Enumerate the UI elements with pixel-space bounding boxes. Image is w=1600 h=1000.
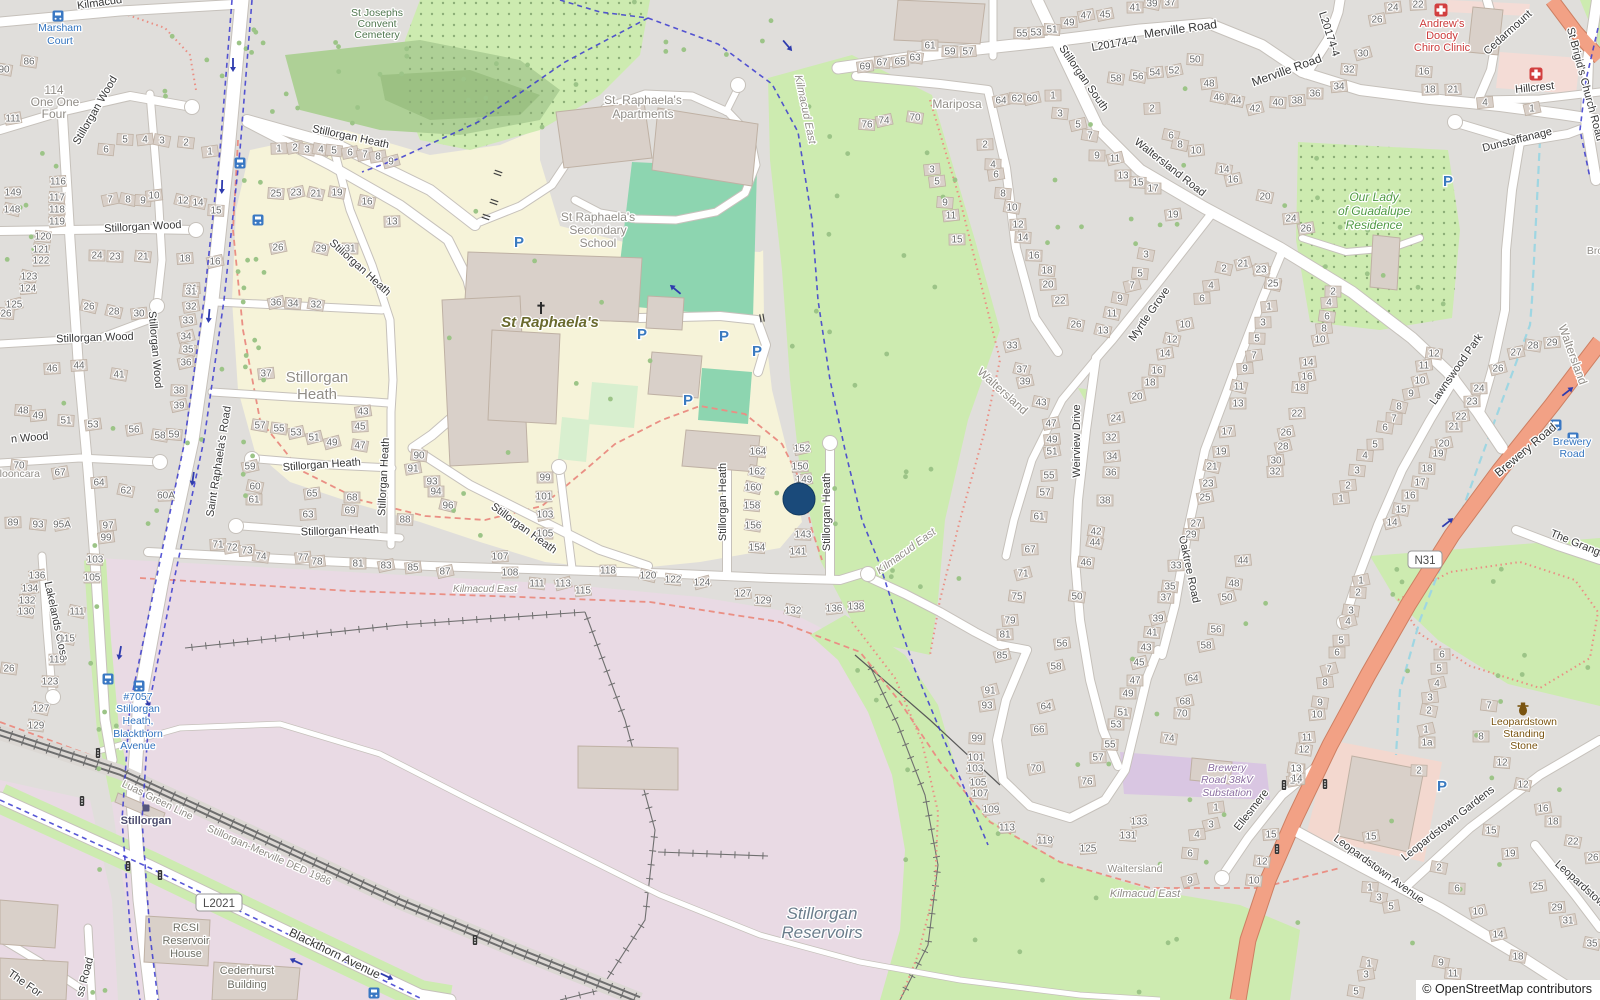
house-number: 62: [1011, 94, 1023, 105]
house-number: 49: [1122, 689, 1134, 700]
map-label: Stillorgan: [787, 904, 858, 923]
map-label: School: [580, 236, 617, 250]
house-number: 10: [148, 191, 160, 202]
house-number: 4: [1345, 617, 1351, 628]
road-ref-text: L2021: [203, 898, 235, 910]
house-number: 160: [745, 483, 762, 494]
house-number: 111: [5, 114, 21, 125]
house-number: 64: [93, 478, 105, 489]
house-number: 26: [83, 302, 95, 313]
house-number: 16: [1404, 491, 1416, 502]
house-number: 57: [254, 421, 266, 432]
house-number: 11: [1110, 154, 1121, 165]
house-number: 49: [32, 411, 44, 422]
house-number: 3: [929, 165, 935, 176]
house-number: 71: [212, 540, 224, 551]
house-number: 108: [502, 568, 519, 579]
house-number: 4: [142, 135, 148, 146]
house-number: 5: [1436, 664, 1442, 675]
house-number: 131: [1120, 831, 1137, 842]
house-number: 5: [331, 146, 337, 157]
house-number: 8: [1322, 678, 1328, 689]
house-number: 6: [1334, 648, 1340, 659]
house-number: 150: [792, 462, 809, 473]
house-number: 2: [292, 143, 298, 154]
house-number: 19: [1432, 449, 1444, 460]
map-viewport[interactable]: PPPPPPPL2021N31KilmacudMarshamCourtStill…: [0, 0, 1600, 1000]
house-number: 141: [790, 547, 807, 558]
map-label: Stillorgan: [121, 815, 172, 827]
house-number: 107: [972, 789, 989, 800]
house-number: 31: [185, 287, 197, 298]
house-number: 26: [1492, 364, 1504, 375]
house-number: 55: [1016, 29, 1028, 40]
house-number: 107: [492, 552, 509, 563]
house-number: 60A: [157, 491, 175, 502]
traffic-signal-icon: [1282, 780, 1286, 790]
map-label: Reservoir: [162, 935, 209, 947]
house-number: 9: [1438, 958, 1444, 969]
house-number: 2: [1436, 863, 1442, 874]
house-number: 42: [1090, 527, 1102, 538]
map-label: Building: [227, 979, 266, 991]
house-number: 46: [1213, 93, 1225, 104]
house-number: 4: [1194, 830, 1200, 841]
house-number: 2: [1221, 264, 1227, 275]
house-number: 51: [60, 416, 72, 427]
house-number: 2: [1416, 766, 1422, 777]
house-number: 9: [942, 198, 948, 209]
parking-icon: P: [752, 343, 762, 360]
bus-stop-icon[interactable]: [134, 681, 145, 692]
house-number: 18: [1512, 952, 1524, 963]
house-number: 53: [290, 428, 302, 439]
house-number: 1: [1050, 91, 1056, 102]
bus-stop-icon[interactable]: [369, 988, 380, 999]
house-number: 29: [315, 244, 327, 255]
map-label: Avenue: [120, 740, 156, 752]
house-number: 75: [1011, 592, 1023, 603]
house-number: 130: [18, 607, 35, 618]
medical-cross-icon: [1530, 68, 1543, 81]
map-label: Secondary: [569, 223, 626, 237]
house-number: 67: [54, 468, 66, 479]
house-number: 12: [177, 196, 189, 207]
house-number: 31: [344, 244, 356, 255]
house-number: 18: [1294, 383, 1306, 394]
house-number: 15: [1365, 832, 1377, 843]
map-label: Stone: [1510, 740, 1538, 752]
map-label: Blackthorn: [113, 728, 163, 740]
house-number: 77: [297, 553, 309, 564]
house-number: 26: [1280, 428, 1292, 439]
house-number: 158: [744, 501, 761, 512]
house-number: 11: [1419, 361, 1430, 372]
house-number: 118: [600, 566, 616, 577]
house-number: 60: [1026, 94, 1038, 105]
house-number: 21: [1448, 422, 1460, 433]
house-number: 129: [755, 596, 772, 607]
house-number: 103: [537, 510, 554, 521]
map-label: Cemetery: [354, 29, 400, 41]
house-number: 35: [182, 345, 194, 356]
house-number: 52: [1168, 66, 1180, 77]
house-number: 123: [42, 677, 59, 688]
map-label: Stillorgan Heath: [717, 463, 729, 541]
house-number: 4: [1482, 98, 1488, 109]
house-number: 15: [951, 235, 963, 246]
house-number: 12: [1298, 745, 1310, 756]
house-number: 5: [1254, 334, 1260, 345]
house-number: 39: [173, 401, 185, 412]
house-number: 17: [1414, 478, 1426, 489]
house-number: 46: [1080, 558, 1092, 569]
house-number: 117: [49, 193, 65, 204]
house-number: 57: [1092, 753, 1104, 764]
house-number: 15: [1265, 830, 1277, 841]
house-number: 61: [1033, 512, 1045, 523]
house-number: 1: [1423, 725, 1429, 736]
map-label: Waltersland: [1107, 863, 1162, 875]
house-number: 47: [354, 441, 366, 452]
house-number: 97: [102, 521, 114, 532]
house-number: 70: [1030, 764, 1042, 775]
house-number: 30: [1270, 456, 1282, 467]
house-number: 2: [1345, 481, 1351, 492]
house-number: 11: [1302, 733, 1313, 744]
house-number: 28: [1277, 442, 1289, 453]
house-number: 13: [1097, 326, 1109, 337]
house-number: 120: [640, 571, 657, 582]
house-number: 4: [318, 145, 324, 156]
traffic-signal-icon: [126, 861, 130, 871]
attribution: © OpenStreetMap contributors: [1416, 980, 1600, 1000]
house-number: 11: [1107, 309, 1118, 320]
map-label: Residence: [1346, 218, 1403, 232]
house-number: 21: [1206, 462, 1218, 473]
house-number: 2: [1426, 706, 1432, 717]
house-number: 58: [154, 431, 166, 442]
house-number: 89: [7, 518, 19, 529]
map-label: St Raphaela's: [501, 314, 599, 331]
house-number: 18: [1424, 85, 1436, 96]
house-number: 5: [1388, 902, 1394, 913]
house-number: 127: [33, 704, 50, 715]
house-number: 50: [1189, 55, 1201, 66]
map-label: House: [170, 948, 202, 960]
house-number: 10: [1314, 335, 1326, 346]
house-number: 39: [1152, 614, 1164, 625]
map-label: Our Lady: [1349, 190, 1399, 204]
house-number: 93: [981, 701, 993, 712]
house-number: 5: [1137, 269, 1143, 280]
house-number: 16: [1151, 366, 1163, 377]
house-number: 51: [1046, 447, 1058, 458]
house-number: 18: [179, 254, 191, 265]
house-number: 115: [59, 634, 75, 645]
map-label: Andrew's: [1420, 18, 1465, 30]
map-canvas[interactable]: PPPPPPPL2021N31KilmacudMarshamCourtStill…: [0, 0, 1600, 1000]
bus-stop-icon[interactable]: [235, 158, 246, 169]
luas-stop-icon[interactable]: [143, 805, 150, 812]
house-number: 1: [1213, 803, 1219, 814]
house-number: 38: [1291, 96, 1303, 107]
house-number: 1: [276, 144, 282, 155]
house-number: 6: [1187, 849, 1193, 860]
house-number: 105: [970, 778, 987, 789]
house-number: 66: [1033, 725, 1045, 736]
house-number: 12: [1166, 335, 1178, 346]
house-number: 143: [795, 530, 812, 541]
house-number: 113: [999, 823, 1015, 834]
house-number: 124: [20, 284, 37, 295]
house-number: 6: [1439, 650, 1445, 661]
house-number: 38: [1099, 496, 1111, 507]
house-number: 7: [1391, 414, 1397, 425]
house-number: 4: [1326, 298, 1332, 309]
map-label: Heath: [297, 386, 337, 403]
house-number: 20: [1042, 280, 1054, 291]
house-number: 4: [1208, 281, 1214, 292]
house-number: 124: [694, 578, 711, 589]
house-number: 8: [1177, 140, 1183, 151]
house-number: 33: [1006, 341, 1018, 352]
house-number: 14: [1159, 349, 1171, 360]
house-number: 45: [1133, 658, 1145, 669]
house-number: 9: [1117, 294, 1123, 305]
house-number: 56: [128, 425, 140, 436]
house-number: 44: [1089, 538, 1101, 549]
map-label: Cederhurst: [220, 965, 274, 977]
house-number: 3: [1427, 693, 1433, 704]
house-number: 19: [1167, 210, 1179, 221]
location-marker[interactable]: [783, 483, 815, 515]
house-number: 15: [1395, 505, 1407, 516]
house-number: 50: [1221, 593, 1233, 604]
house-number: 61: [248, 495, 260, 506]
house-number: 23: [290, 188, 302, 199]
house-number: 1: [207, 147, 213, 158]
house-number: 88: [399, 515, 411, 526]
house-number: 26: [0, 309, 12, 320]
house-number: 39: [1019, 377, 1031, 388]
house-number: 43: [1140, 643, 1152, 654]
house-number: 56: [1210, 625, 1222, 636]
house-number: 96: [442, 501, 454, 512]
house-number: 78: [311, 557, 323, 568]
house-number: 132: [785, 606, 802, 617]
traffic-signal-icon: [80, 796, 84, 806]
house-number: 7: [1251, 351, 1257, 362]
house-number: 81: [352, 559, 364, 570]
house-number: 14: [192, 198, 204, 209]
house-number: 21: [310, 189, 322, 200]
house-number: 53: [1110, 720, 1122, 731]
house-number: 64: [1187, 674, 1199, 685]
house-number: 6: [1454, 884, 1460, 895]
house-number: 3: [159, 136, 165, 147]
house-number: 162: [749, 467, 766, 478]
house-number: 26: [272, 243, 284, 254]
house-number: 20: [1259, 192, 1271, 203]
house-number: 49: [1046, 435, 1058, 446]
house-number: 27: [1510, 348, 1522, 359]
house-number: 72: [226, 543, 238, 554]
map-label: RCSI: [173, 922, 199, 934]
house-number: 17: [1221, 427, 1233, 438]
house-number: 53: [1030, 28, 1042, 39]
map-label: Marsham: [38, 22, 82, 34]
house-number: 70: [1176, 709, 1188, 720]
house-number: 3: [1363, 970, 1369, 981]
house-number: 5: [1338, 636, 1344, 647]
parking-icon: P: [1443, 173, 1453, 190]
map-label: Weirview Drive: [1071, 404, 1083, 477]
house-number: 4: [1434, 679, 1440, 690]
parking-icon: P: [637, 326, 647, 343]
house-number: 68: [1179, 697, 1191, 708]
house-number: 9: [388, 157, 394, 168]
house-number: 44: [73, 361, 85, 372]
house-number: 11: [1234, 382, 1245, 393]
map-label: Four: [42, 107, 67, 121]
house-number: 29: [1546, 338, 1558, 349]
house-number: 12: [1496, 758, 1508, 769]
house-number: 34: [1333, 82, 1345, 93]
house-number: 3: [1354, 466, 1360, 477]
house-number: 15: [1485, 826, 1497, 837]
house-number: 105: [84, 573, 101, 584]
house-number: 111: [529, 579, 545, 590]
house-number: 16: [209, 257, 221, 268]
house-number: 5: [934, 177, 940, 188]
house-number: 47: [1080, 11, 1092, 22]
bus-stop-icon[interactable]: [253, 215, 264, 226]
house-number: 41: [1146, 628, 1158, 639]
house-number: 42: [1249, 104, 1261, 115]
house-number: 115: [575, 586, 591, 597]
house-number: 6: [103, 145, 109, 156]
house-number: 122: [665, 575, 682, 586]
house-number: 58: [1050, 662, 1062, 673]
house-number: 36: [270, 298, 282, 309]
house-number: 3: [304, 145, 310, 156]
house-number: 119: [49, 217, 65, 228]
house-number: 58: [1110, 74, 1122, 85]
house-number: 41: [113, 370, 125, 381]
house-number: 103: [967, 764, 984, 775]
house-number: 2: [1149, 104, 1155, 115]
parking-icon: P: [514, 234, 524, 251]
house-number: 19: [1215, 447, 1227, 458]
house-number: 54: [1149, 68, 1161, 79]
house-number: 23: [109, 252, 121, 263]
house-number: 21: [1447, 85, 1459, 96]
house-number: 14: [1291, 774, 1303, 785]
house-number: 17: [1147, 184, 1159, 195]
house-number: 118: [49, 205, 65, 216]
house-number: 111: [69, 607, 85, 618]
house-number: 32: [1269, 467, 1281, 478]
house-number: 15: [1132, 178, 1144, 189]
house-number: 24: [1110, 414, 1122, 425]
house-number: 49: [1063, 18, 1075, 29]
map-label: Stillorgan: [286, 369, 349, 386]
house-number: 51: [1117, 708, 1129, 719]
map-label: St Raphaela's: [561, 210, 635, 224]
house-number: 63: [302, 510, 314, 521]
house-number: 37: [1164, 0, 1176, 9]
house-number: 22: [1412, 0, 1424, 11]
map-label: of Guadalupe: [1338, 204, 1410, 218]
house-number: 136: [826, 604, 843, 615]
house-number: 11: [1448, 969, 1459, 980]
house-number: 116: [50, 177, 66, 188]
map-label: St. Raphaela's: [604, 93, 682, 107]
house-number: 25: [1199, 493, 1211, 504]
map-label: Court: [47, 35, 73, 47]
house-number: 109: [983, 805, 1000, 816]
house-number: 40: [1272, 98, 1284, 109]
map-label: Brewery: [1553, 436, 1592, 448]
house-number: 9: [140, 196, 146, 207]
house-number: 34: [1106, 452, 1118, 463]
house-number: 26: [3, 664, 15, 675]
house-number: 121: [33, 245, 50, 256]
house-number: 10: [1472, 907, 1484, 918]
house-number: 6: [1382, 423, 1388, 434]
house-number: 24: [1285, 214, 1297, 225]
house-number: 3: [1208, 820, 1214, 831]
house-number: 13: [1117, 171, 1129, 182]
house-number: 73: [241, 546, 253, 557]
house-number: 10: [1179, 320, 1191, 331]
house-number: 1: [1367, 883, 1373, 894]
house-number: 58: [1200, 641, 1212, 652]
house-number: 32: [310, 300, 322, 311]
traffic-signal-icon: [473, 935, 477, 945]
house-number: 7: [1326, 665, 1332, 676]
house-number: 37: [1016, 365, 1028, 376]
house-number: 14: [1302, 358, 1314, 369]
house-number: 95A: [53, 520, 71, 531]
house-number: 5: [1075, 120, 1081, 131]
map-label: Stillorgan Heath: [821, 473, 833, 551]
house-number: 65: [306, 489, 318, 500]
house-number: 48: [17, 406, 29, 417]
map-label: Mariposa: [932, 97, 982, 111]
house-number: 24: [91, 251, 103, 262]
house-number: 2: [982, 140, 988, 151]
house-number: 45: [354, 422, 366, 433]
house-number: 1: [1366, 959, 1372, 970]
house-number: 120: [35, 232, 52, 243]
house-number: 3: [1057, 109, 1063, 120]
house-number: 65: [894, 57, 906, 68]
house-number: 28: [1527, 341, 1539, 352]
map-label: Road: [1559, 448, 1584, 460]
bus-stop-icon[interactable]: [103, 674, 114, 685]
house-number: 18: [1144, 378, 1156, 389]
house-number: 164: [750, 447, 767, 458]
house-number: 48: [1203, 79, 1215, 90]
bus-stop-icon[interactable]: [53, 11, 64, 22]
house-number: 25: [1267, 279, 1279, 290]
house-number: 24: [1387, 3, 1399, 14]
house-number: 136: [29, 571, 46, 582]
house-number: 8: [375, 152, 381, 163]
house-number: 21: [1237, 259, 1249, 270]
